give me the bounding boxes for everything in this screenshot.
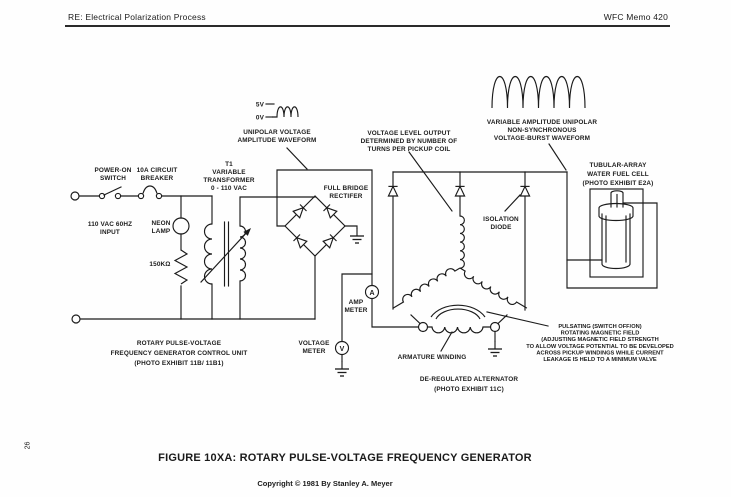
svg-text:DETERMINED BY NUMBER OF: DETERMINED BY NUMBER OF xyxy=(361,138,458,145)
svg-text:VOLTAGE LEVEL OUTPUT: VOLTAGE LEVEL OUTPUT xyxy=(367,130,450,137)
svg-text:FULL BRIDGE: FULL BRIDGE xyxy=(324,185,369,192)
svg-text:BREAKER: BREAKER xyxy=(141,175,174,182)
svg-text:UNIPOLAR VOLTAGE: UNIPOLAR VOLTAGE xyxy=(243,129,311,136)
svg-text:AMPLITUDE WAVEFORM: AMPLITUDE WAVEFORM xyxy=(238,137,317,144)
svg-text:DE-REGULATED ALTERNATOR: DE-REGULATED ALTERNATOR xyxy=(420,376,518,383)
svg-text:0V: 0V xyxy=(256,115,265,122)
svg-text:T1: T1 xyxy=(225,161,233,168)
svg-text:ARMATURE WINDING: ARMATURE WINDING xyxy=(398,354,467,361)
svg-text:(PHOTO EXHIBIT 11B/ 11B1): (PHOTO EXHIBIT 11B/ 11B1) xyxy=(134,360,223,367)
resistor-symbol xyxy=(175,250,187,284)
svg-text:METER: METER xyxy=(344,307,367,314)
label-alternator: DE-REGULATED ALTERNATOR (PHOTO EXHIBIT 1… xyxy=(420,376,518,393)
svg-text:ROTARY PULSE-VOLTAGE: ROTARY PULSE-VOLTAGE xyxy=(137,340,222,347)
pickup-coil-center xyxy=(460,216,464,268)
amp-meter-symbol: A xyxy=(366,286,379,299)
svg-text:ACROSS PICKUP WINDINGS WHILE C: ACROSS PICKUP WINDINGS WHILE CURRENT xyxy=(536,350,664,356)
control-unit-wiring xyxy=(79,170,419,361)
svg-text:150KΩ: 150KΩ xyxy=(149,261,170,268)
unipolar-waveform-graphic: 5V 0V xyxy=(256,102,298,122)
svg-text:ROTATING MAGNETIC FIELD: ROTATING MAGNETIC FIELD xyxy=(561,331,640,337)
svg-text:TUBULAR-ARRAY: TUBULAR-ARRAY xyxy=(589,162,647,169)
svg-text:PULSATING (SWITCH OFF/ON): PULSATING (SWITCH OFF/ON) xyxy=(558,324,641,330)
label-voltage-level-output: VOLTAGE LEVEL OUTPUT DETERMINED BY NUMBE… xyxy=(361,130,458,153)
svg-text:DIODE: DIODE xyxy=(491,224,513,231)
svg-text:METER: METER xyxy=(302,348,325,355)
pickup-coil-left xyxy=(391,264,460,308)
svg-text:(PHOTO EXHIBIT E2A): (PHOTO EXHIBIT E2A) xyxy=(583,180,654,187)
label-control-unit: ROTARY PULSE-VOLTAGE FREQUENCY GENERATOR… xyxy=(111,340,248,367)
label-full-bridge: FULL BRIDGE RECTIFER xyxy=(324,185,369,200)
svg-text:TURNS PER PICKUP COIL: TURNS PER PICKUP COIL xyxy=(368,146,451,153)
neon-lamp-symbol xyxy=(173,218,189,234)
label-vac-input: 110 VAC 60HZ INPUT xyxy=(88,221,132,236)
svg-text:FREQUENCY GENERATOR CONTROL UN: FREQUENCY GENERATOR CONTROL UNIT xyxy=(111,350,248,357)
label-isolation-diode: ISOLATION DIODE xyxy=(483,216,519,231)
svg-text:VARIABLE AMPLITUDE UNIPOLAR: VARIABLE AMPLITUDE UNIPOLAR xyxy=(487,119,597,126)
label-t1-transformer: T1 VARIABLE TRANSFORMER 0 - 110 VAC xyxy=(203,161,255,192)
voltage-burst-waveform-graphic xyxy=(492,77,585,109)
svg-text:WATER FUEL CELL: WATER FUEL CELL xyxy=(587,171,649,178)
label-neon-lamp: NEON LAMP xyxy=(151,220,170,235)
water-fuel-cell-symbol xyxy=(590,189,643,277)
svg-text:NEON: NEON xyxy=(151,220,170,227)
svg-text:TO ALLOW VOLTAGE POTENTIAL TO: TO ALLOW VOLTAGE POTENTIAL TO BE DEVELOP… xyxy=(526,344,673,350)
svg-text:VOLTAGE-BURST WAVEFORM: VOLTAGE-BURST WAVEFORM xyxy=(494,135,590,142)
svg-text:(PHOTO EXHIBIT 11C): (PHOTO EXHIBIT 11C) xyxy=(434,386,504,393)
label-burst-waveform: VARIABLE AMPLITUDE UNIPOLAR NON-SYNCHRON… xyxy=(487,119,597,142)
svg-text:A: A xyxy=(369,290,374,297)
scanned-memo-page: RE: Electrical Polarization Process WFC … xyxy=(0,0,731,497)
label-pulsating-field-note: PULSATING (SWITCH OFF/ON) ROTATING MAGNE… xyxy=(526,324,673,363)
label-armature-winding: ARMATURE WINDING xyxy=(398,354,467,361)
label-amp-meter: AMP METER xyxy=(344,299,367,314)
label-voltage-meter: VOLTAGE METER xyxy=(299,340,331,355)
svg-text:VOLTAGE: VOLTAGE xyxy=(299,340,331,347)
label-water-fuel-cell: TUBULAR-ARRAY WATER FUEL CELL (PHOTO EXH… xyxy=(583,162,654,187)
svg-text:ISOLATION: ISOLATION xyxy=(483,216,519,223)
svg-text:TRANSFORMER: TRANSFORMER xyxy=(203,177,255,184)
svg-text:0 - 110 VAC: 0 - 110 VAC xyxy=(211,185,247,192)
svg-text:VARIABLE: VARIABLE xyxy=(212,169,246,176)
svg-text:AMP: AMP xyxy=(349,299,364,306)
svg-text:INPUT: INPUT xyxy=(100,229,120,236)
variable-transformer-symbol xyxy=(201,222,251,286)
circuit-breaker-symbol xyxy=(138,186,161,199)
svg-text:10A CIRCUIT: 10A CIRCUIT xyxy=(137,167,178,174)
input-terminals xyxy=(71,192,80,323)
svg-text:RECTIFER: RECTIFER xyxy=(329,193,362,200)
power-on-switch-symbol xyxy=(99,187,121,199)
svg-text:POWER-ON: POWER-ON xyxy=(94,167,131,174)
label-resistor-150k: 150KΩ xyxy=(149,261,170,268)
svg-text:5V: 5V xyxy=(256,102,265,109)
svg-text:NON-SYNCHRONOUS: NON-SYNCHRONOUS xyxy=(508,127,578,134)
label-unipolar-waveform: UNIPOLAR VOLTAGE AMPLITUDE WAVEFORM xyxy=(238,129,317,144)
svg-text:(ADJUSTING MAGNETIC FIELD STRE: (ADJUSTING MAGNETIC FIELD STRENGTH xyxy=(541,337,659,343)
svg-text:LEAKAGE IS HELD TO A MINIMUM V: LEAKAGE IS HELD TO A MINIMUM VALVE xyxy=(543,357,657,363)
svg-text:SWITCH: SWITCH xyxy=(100,175,126,182)
label-power-on-switch: POWER-ON SWITCH xyxy=(94,167,131,182)
svg-text:V: V xyxy=(340,346,345,353)
svg-text:LAMP: LAMP xyxy=(152,228,171,235)
circuit-schematic: A V xyxy=(0,0,731,497)
label-circuit-breaker: 10A CIRCUIT BREAKER xyxy=(137,167,178,182)
svg-text:110 VAC 60HZ: 110 VAC 60HZ xyxy=(88,221,132,228)
